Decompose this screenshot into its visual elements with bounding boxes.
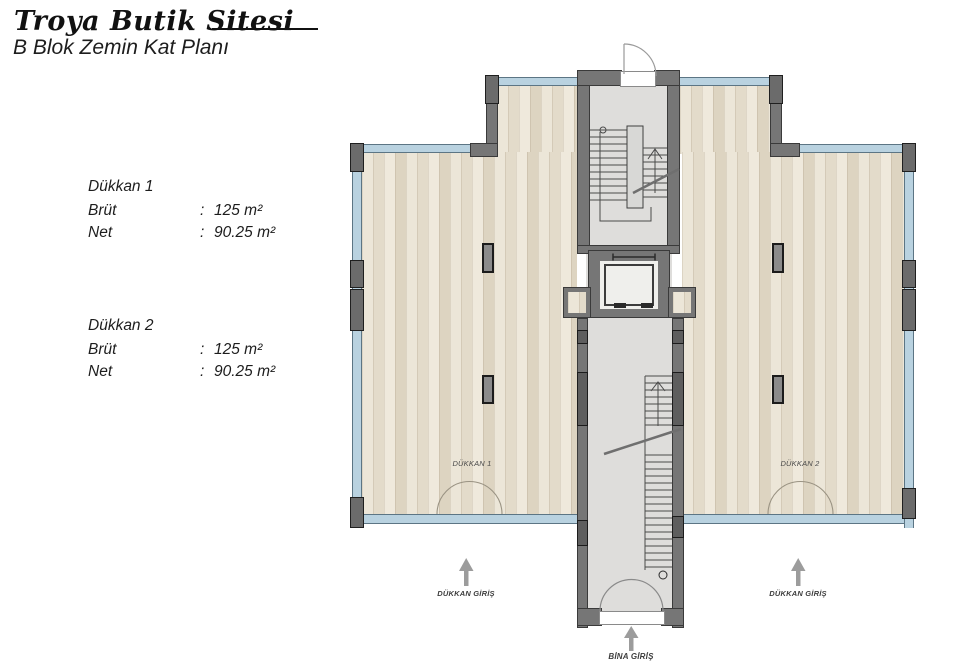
stairwell-door-swing — [624, 44, 656, 76]
room-label-dukkan-2: DÜKKAN 2 — [750, 459, 850, 468]
entrance-label-shop-right: DÜKKAN GİRİŞ — [748, 589, 848, 598]
up-arrow-icon — [791, 558, 806, 586]
room-label-dukkan-1: DÜKKAN 1 — [422, 459, 522, 468]
shop1-door-swing — [437, 482, 502, 515]
entrance-label-building: BİNA GİRİŞ — [581, 652, 681, 661]
building-entrance-door-swing — [600, 580, 663, 612]
stairwell-stairs — [590, 126, 679, 221]
up-arrow-icon — [459, 558, 474, 586]
entrance-label-shop-left: DÜKKAN GİRİŞ — [416, 589, 516, 598]
elevator-door-symbols — [613, 254, 655, 309]
floor-plan-page: Troya Butik Sitesi B Blok Zemin Kat Plan… — [0, 0, 960, 667]
shop2-door-swing — [768, 482, 833, 515]
up-arrow-icon — [624, 626, 639, 651]
plan-linework — [0, 0, 960, 667]
corridor-stairs — [604, 376, 681, 579]
